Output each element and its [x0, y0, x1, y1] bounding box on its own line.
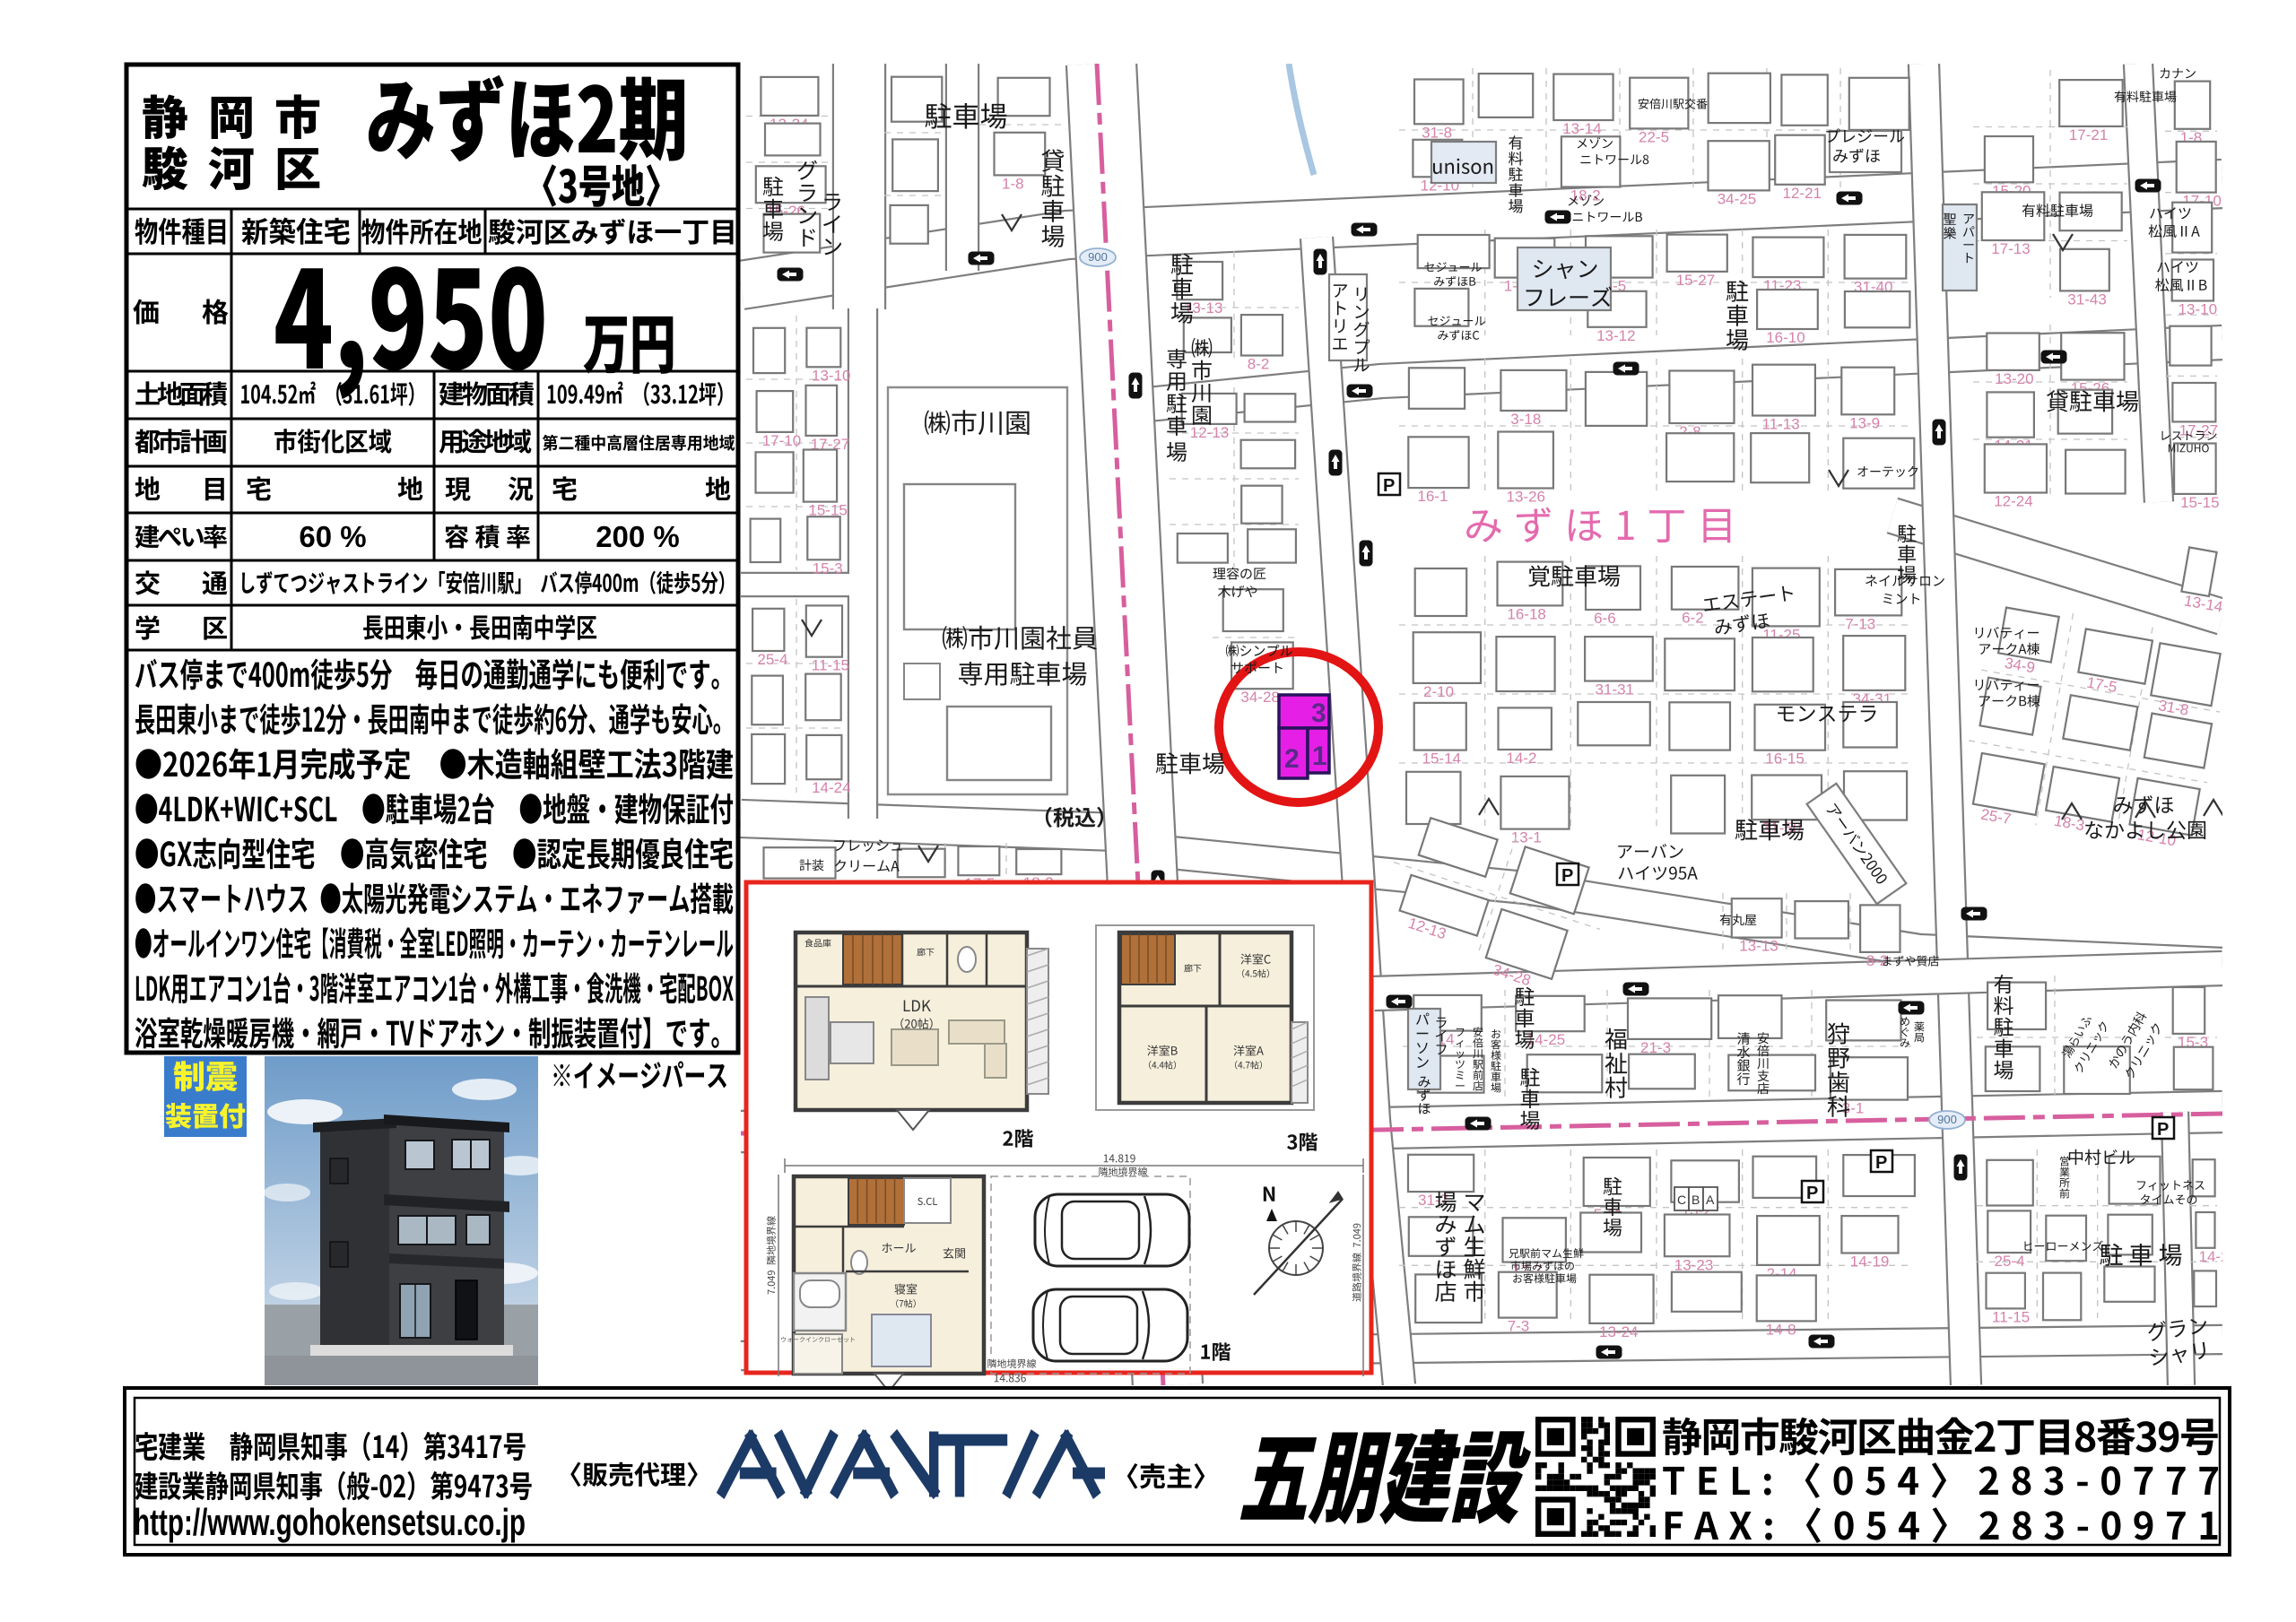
svg-text:P: P	[1806, 1184, 1818, 1203]
svg-text:14-8: 14-8	[1766, 1321, 1796, 1338]
svg-text:12-21: 12-21	[1783, 185, 1822, 202]
svg-text:13-10: 13-10	[812, 367, 850, 384]
svg-text:11-15: 11-15	[1992, 1308, 2030, 1325]
svg-text:12-13: 12-13	[1190, 424, 1229, 441]
svg-text:25-4: 25-4	[757, 651, 787, 668]
svg-text:31-43: 31-43	[2067, 291, 2106, 308]
svg-text:11-13: 11-13	[1762, 415, 1800, 432]
svg-text:P: P	[1561, 866, 1573, 886]
svg-text:2: 2	[1284, 744, 1300, 774]
svg-text:15-3: 15-3	[813, 559, 843, 577]
svg-text:31-8: 31-8	[1422, 124, 1452, 141]
svg-text:14-19: 14-19	[1850, 1253, 1889, 1271]
svg-text:13-9: 13-9	[1849, 414, 1880, 431]
svg-text:16-10: 16-10	[1766, 329, 1805, 346]
svg-text:12-24: 12-24	[1994, 493, 2032, 510]
svg-text:1: 1	[1312, 742, 1327, 771]
svg-text:13-14: 13-14	[1562, 120, 1601, 137]
svg-text:34-25: 34-25	[1718, 191, 1756, 208]
svg-text:22-5: 22-5	[1639, 128, 1669, 145]
svg-text:15-14: 15-14	[1422, 750, 1461, 768]
svg-text:31-7: 31-7	[1418, 1192, 1448, 1209]
svg-text:6-6: 6-6	[1594, 610, 1616, 627]
svg-text:14-24: 14-24	[812, 779, 850, 796]
svg-text:31-31: 31-31	[1596, 681, 1634, 698]
svg-text:60 %: 60 %	[299, 520, 366, 553]
svg-text:17-27: 17-27	[2179, 421, 2218, 438]
svg-text:17-10: 17-10	[762, 432, 801, 449]
svg-text:P: P	[1875, 1153, 1887, 1173]
svg-text:6-2: 6-2	[1682, 610, 1704, 627]
svg-text:C: C	[1677, 1193, 1686, 1207]
svg-text:15-15: 15-15	[2180, 494, 2219, 511]
svg-text:13-26: 13-26	[1507, 488, 1545, 505]
svg-text:11-15: 11-15	[812, 657, 849, 674]
svg-text:1-8: 1-8	[1002, 175, 1024, 192]
svg-text:8-2: 8-2	[1248, 356, 1270, 373]
svg-text:P: P	[2157, 1120, 2169, 1140]
svg-text:P: P	[1383, 476, 1395, 496]
svg-text:B: B	[1692, 1193, 1700, 1207]
svg-text:13-13: 13-13	[1739, 938, 1778, 955]
svg-text:900: 900	[1088, 250, 1108, 264]
svg-text:13-10: 13-10	[2179, 301, 2217, 318]
svg-text:34-28: 34-28	[1240, 689, 1279, 706]
svg-text:13-12: 13-12	[1596, 327, 1635, 344]
svg-text:17-13: 17-13	[1991, 240, 2030, 257]
svg-text:A: A	[1706, 1193, 1715, 1207]
svg-text:17-21: 17-21	[2069, 126, 2108, 143]
svg-text:16-1: 16-1	[1417, 488, 1448, 505]
svg-text:13-20: 13-20	[1995, 370, 2033, 387]
svg-text:900: 900	[1937, 1113, 1957, 1126]
svg-text:16-15: 16-15	[1765, 750, 1804, 768]
svg-text:13-23: 13-23	[1674, 1256, 1713, 1273]
svg-text:http://www.gohokensetsu.co.jp: http://www.gohokensetsu.co.jp	[134, 1501, 526, 1543]
svg-text:14-2: 14-2	[1506, 750, 1536, 767]
svg-text:3-18: 3-18	[1510, 411, 1541, 428]
svg-text:7-13: 7-13	[1845, 615, 1875, 632]
svg-text:15-27: 15-27	[1676, 272, 1715, 289]
svg-text:16-18: 16-18	[1507, 605, 1545, 622]
svg-text:200 %: 200 %	[596, 520, 680, 553]
svg-text:2-10: 2-10	[1423, 683, 1454, 700]
svg-text:25-4: 25-4	[1995, 1253, 2025, 1270]
svg-text:7-3: 7-3	[1508, 1318, 1530, 1335]
svg-text:3: 3	[1311, 698, 1326, 728]
svg-text:13-24: 13-24	[1599, 1323, 1638, 1340]
